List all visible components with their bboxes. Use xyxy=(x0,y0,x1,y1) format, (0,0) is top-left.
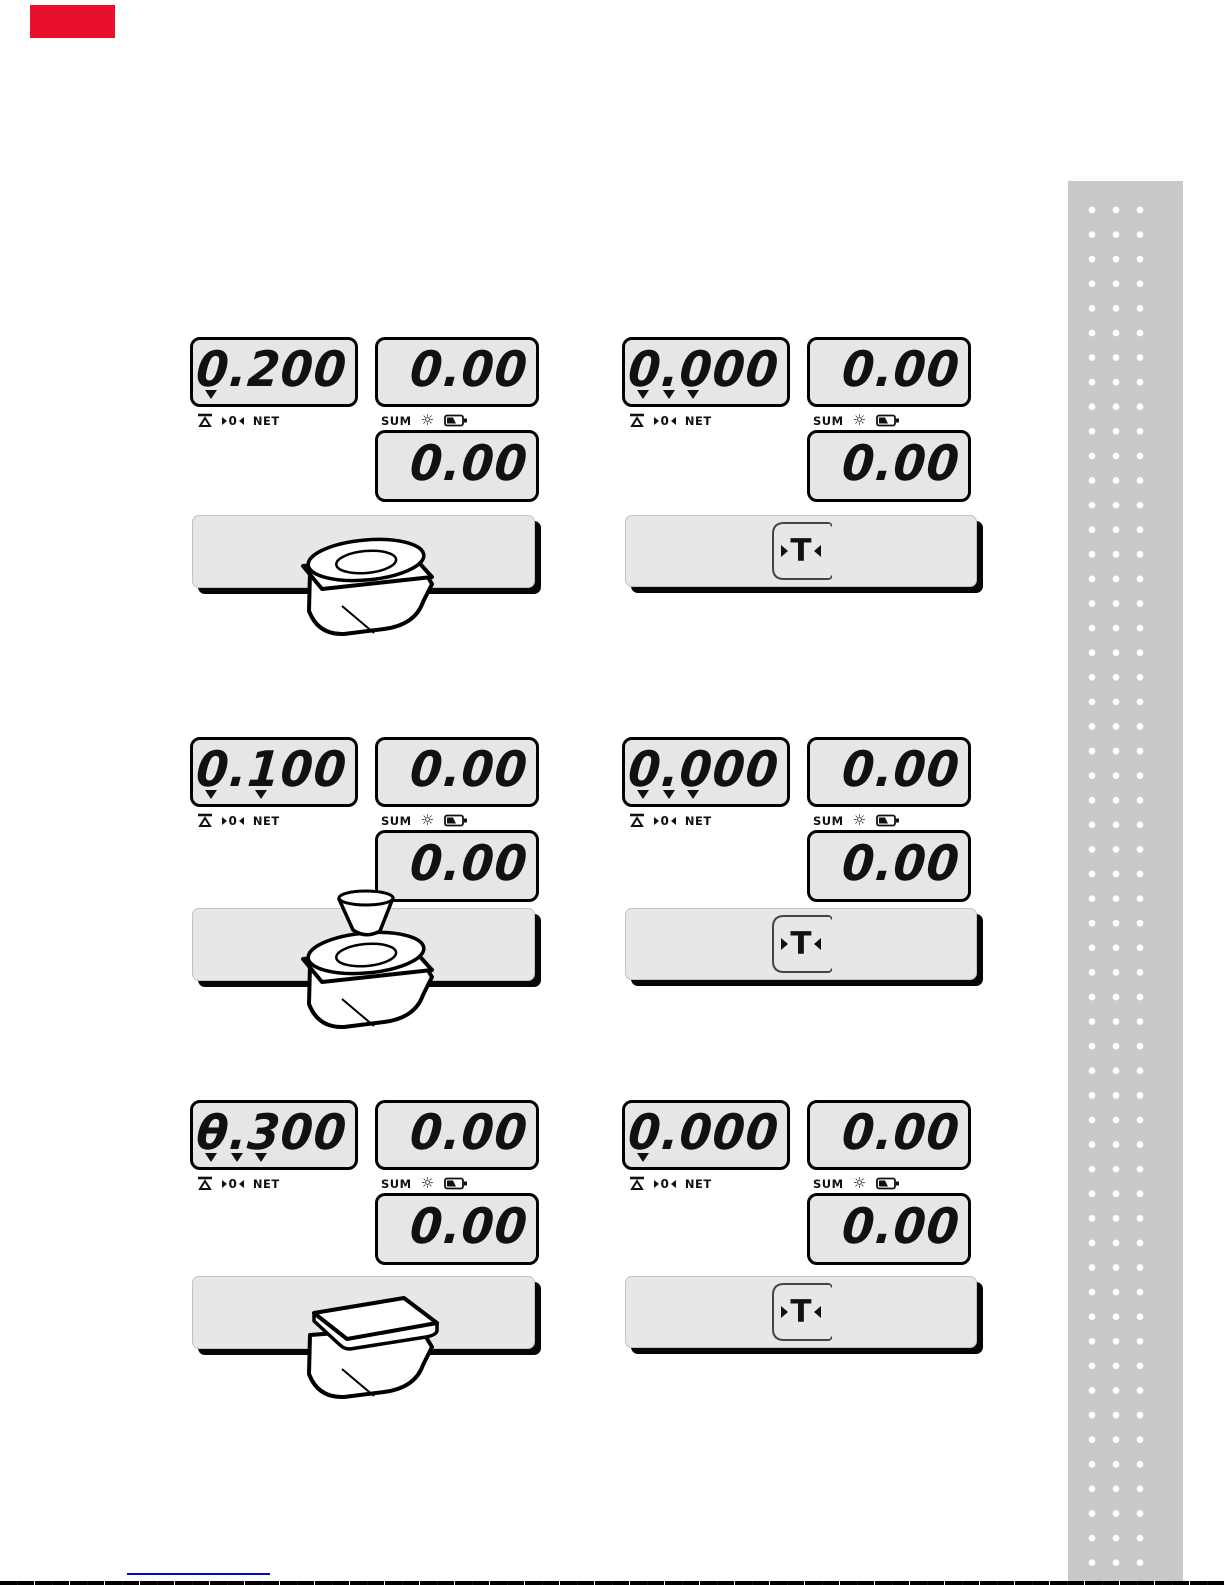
stable-marker-icon xyxy=(205,390,217,399)
sum-indicator-row: SUM ☼ xyxy=(381,1176,468,1191)
sum-label: SUM xyxy=(381,814,412,828)
weight-display: - 0.300 xyxy=(190,1100,358,1170)
action-bar xyxy=(192,1276,535,1349)
action-bar xyxy=(192,908,535,981)
action-bar xyxy=(192,515,535,588)
page-side-stripe xyxy=(1068,181,1183,1585)
sum-indicator-row: SUM ☼ xyxy=(813,813,900,828)
weight-value: 0.000 xyxy=(625,741,789,804)
weight-display: 0.000 xyxy=(622,1100,790,1170)
stable-marker-icon xyxy=(205,1153,217,1162)
sum-indicator-row: SUM ☼ xyxy=(381,813,468,828)
gear-icon: ☼ xyxy=(421,813,435,828)
sum-display-bottom: 0.00 xyxy=(807,1193,971,1265)
net-label: NET xyxy=(685,814,712,828)
gear-icon: ☼ xyxy=(853,413,867,428)
stable-marker-icon xyxy=(637,390,649,399)
net-label: NET xyxy=(685,1177,712,1191)
zero-center-icon: 0 xyxy=(654,415,676,427)
battery-icon xyxy=(444,814,468,827)
action-bar: T xyxy=(625,1276,977,1348)
stable-balance-icon xyxy=(629,413,645,428)
sum-indicator-row: SUM ☼ xyxy=(813,1176,900,1191)
stable-marker-icon xyxy=(205,790,217,799)
zero-marker-icon xyxy=(663,790,675,799)
sum-display-bottom: 0.00 xyxy=(375,830,539,902)
sum-label: SUM xyxy=(381,1177,412,1191)
scale-with-plate-illustration xyxy=(276,508,452,644)
scale-with-bowl-illustration xyxy=(276,885,452,1037)
stable-balance-icon xyxy=(197,1176,213,1191)
net-marker-icon xyxy=(255,790,267,799)
sum-label: SUM xyxy=(381,414,412,428)
net-marker-icon xyxy=(687,390,699,399)
page-bottom-edge xyxy=(0,1581,1225,1585)
battery-icon xyxy=(444,1177,468,1190)
sum-display-top: 0.00 xyxy=(375,737,539,807)
sum-bottom-value: 0.00 xyxy=(839,435,970,498)
tare-key: T xyxy=(770,521,832,581)
action-bar: T xyxy=(625,515,977,587)
stable-balance-icon xyxy=(197,413,213,428)
gear-icon: ☼ xyxy=(853,813,867,828)
weight-value: 0.100 xyxy=(193,741,357,804)
tare-key-label: T xyxy=(770,521,832,581)
weight-value: 0.300 xyxy=(193,1104,357,1167)
weight-value: 0.000 xyxy=(625,341,789,404)
manual-page: 0.200 0 NET 0.00 SUM ☼ 0.00 xyxy=(0,0,1225,1585)
net-label: NET xyxy=(685,414,712,428)
sum-bottom-value: 0.00 xyxy=(407,435,538,498)
sum-bottom-value: 0.00 xyxy=(407,835,538,898)
tare-key: T xyxy=(770,914,832,974)
weight-display: 0.000 xyxy=(622,337,790,407)
weight-indicator-row: 0 NET xyxy=(629,1176,712,1191)
sum-display-top: 0.00 xyxy=(807,337,971,407)
stable-balance-icon xyxy=(629,813,645,828)
zero-center-icon: 0 xyxy=(654,1178,676,1190)
weight-display: 0.100 xyxy=(190,737,358,807)
weight-indicator-row: 0 NET xyxy=(197,1176,280,1191)
weight-indicator-row: 0 NET xyxy=(629,813,712,828)
sum-display-top: 0.00 xyxy=(807,1100,971,1170)
sum-display-bottom: 0.00 xyxy=(375,430,539,502)
sum-indicator-row: SUM ☼ xyxy=(813,413,900,428)
weight-value: 0.200 xyxy=(193,341,357,404)
net-marker-icon xyxy=(687,790,699,799)
sum-label: SUM xyxy=(813,1177,844,1191)
battery-icon xyxy=(876,414,900,427)
scale-empty-illustration xyxy=(276,1277,452,1407)
sum-top-value: 0.00 xyxy=(839,341,970,404)
sum-display-top: 0.00 xyxy=(375,337,539,407)
stable-balance-icon xyxy=(197,813,213,828)
action-bar: T xyxy=(625,908,977,980)
sum-label: SUM xyxy=(813,414,844,428)
weight-indicator-row: 0 NET xyxy=(197,813,280,828)
sum-top-value: 0.00 xyxy=(407,341,538,404)
zero-center-icon: 0 xyxy=(222,815,244,827)
sum-top-value: 0.00 xyxy=(839,741,970,804)
sum-top-value: 0.00 xyxy=(407,1104,538,1167)
weight-indicator-row: 0 NET xyxy=(629,413,712,428)
battery-icon xyxy=(876,1177,900,1190)
tare-key-label: T xyxy=(770,914,832,974)
sum-top-value: 0.00 xyxy=(839,1104,970,1167)
net-label: NET xyxy=(253,414,280,428)
sum-bottom-value: 0.00 xyxy=(407,1198,538,1261)
sum-display-bottom: 0.00 xyxy=(807,430,971,502)
gear-icon: ☼ xyxy=(421,1176,435,1191)
net-label: NET xyxy=(253,1177,280,1191)
zero-marker-icon xyxy=(231,1153,243,1162)
battery-icon xyxy=(876,814,900,827)
weight-display: 0.200 xyxy=(190,337,358,407)
sum-bottom-value: 0.00 xyxy=(839,1198,970,1261)
sum-display-top: 0.00 xyxy=(807,737,971,807)
sum-bottom-value: 0.00 xyxy=(839,835,970,898)
sum-display-top: 0.00 xyxy=(375,1100,539,1170)
zero-center-icon: 0 xyxy=(222,415,244,427)
zero-center-icon: 0 xyxy=(222,1178,244,1190)
stable-marker-icon xyxy=(637,790,649,799)
stable-balance-icon xyxy=(629,1176,645,1191)
sum-display-bottom: 0.00 xyxy=(375,1193,539,1265)
zero-marker-icon xyxy=(663,390,675,399)
tare-key-label: T xyxy=(770,1282,832,1342)
stable-marker-icon xyxy=(637,1153,649,1162)
tare-key: T xyxy=(770,1282,832,1342)
gear-icon: ☼ xyxy=(853,1176,867,1191)
weight-indicator-row: 0 NET xyxy=(197,413,280,428)
net-label: NET xyxy=(253,814,280,828)
red-corner-tab xyxy=(30,5,115,38)
footer-link-underline xyxy=(127,1573,270,1575)
sum-indicator-row: SUM ☼ xyxy=(381,413,468,428)
sum-display-bottom: 0.00 xyxy=(807,830,971,902)
sum-label: SUM xyxy=(813,814,844,828)
sum-top-value: 0.00 xyxy=(407,741,538,804)
zero-center-icon: 0 xyxy=(654,815,676,827)
net-marker-icon xyxy=(255,1153,267,1162)
battery-icon xyxy=(444,414,468,427)
weight-value: 0.000 xyxy=(625,1104,789,1167)
stripe-dot-pattern xyxy=(1080,198,1152,1578)
gear-icon: ☼ xyxy=(421,413,435,428)
weight-display: 0.000 xyxy=(622,737,790,807)
